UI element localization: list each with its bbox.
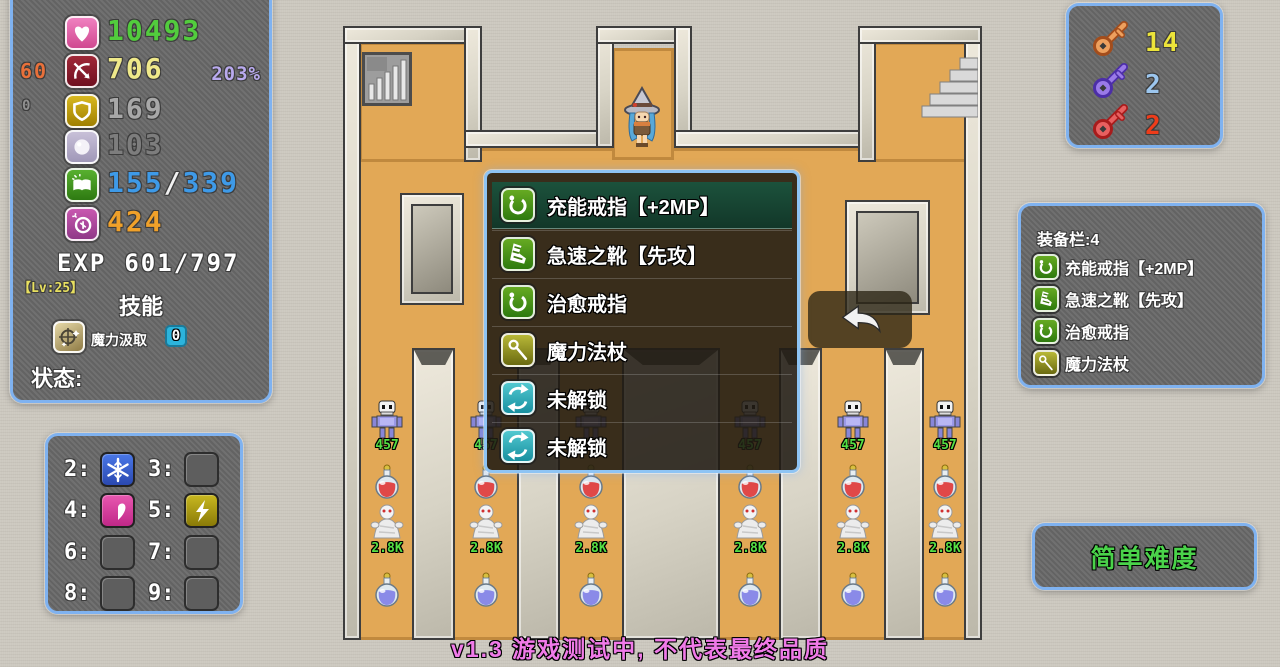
version-text: v1.3 游戏测试中, 不代表最终品质 — [0, 630, 1280, 664]
blue-key-icon — [1091, 60, 1131, 105]
blue-potion[interactable] — [373, 572, 401, 613]
coins-value: 424 — [107, 205, 164, 238]
staff-icon — [501, 333, 535, 367]
enemy-hp-label: 2.8K — [571, 541, 611, 556]
lightning-skill-icon — [189, 498, 215, 524]
popup-item-label: 未解锁 — [547, 384, 607, 413]
refresh-icon — [501, 429, 535, 463]
orb-icon — [65, 130, 99, 164]
skills-header: 技能 — [13, 289, 269, 321]
wall — [858, 26, 982, 44]
enemy-hp-label: 2.8K — [925, 541, 965, 556]
hotkey-slot-9[interactable] — [184, 576, 219, 611]
enemy-hp-label: 2.8K — [833, 541, 873, 556]
corridor-entities: 457 2.8K — [833, 400, 873, 615]
red-potion[interactable] — [373, 464, 401, 505]
popup-item-charge-ring[interactable]: 充能戒指【+2MP】 — [492, 182, 792, 229]
equipment-item: 治愈戒指 — [1033, 318, 1129, 344]
popup-item-locked-2[interactable]: 未解锁 — [492, 422, 792, 469]
attack-value: 706 — [107, 52, 164, 85]
enemy-hp-label: 2.8K — [466, 541, 506, 556]
attack-sword-icon — [65, 54, 99, 88]
blue-potion[interactable] — [839, 572, 867, 613]
keys-panel: 14 2 2 — [1066, 3, 1223, 148]
blue-potion[interactable] — [577, 572, 605, 613]
yellow-key-icon — [1091, 18, 1131, 63]
ring-icon — [501, 188, 535, 222]
equipment-panel-title: 装备栏:4 — [1037, 226, 1099, 250]
corridor-entities: 457 2.8K — [925, 400, 965, 615]
equipment-item-label: 治愈戒指 — [1065, 319, 1129, 343]
hotkey-label-7: 7: — [148, 540, 175, 565]
status-label: 状态: — [31, 361, 82, 393]
enemy-hp-label: 457 — [367, 438, 407, 453]
exp-row: EXP 601/797 — [57, 249, 240, 277]
skill-mana-drain-icon — [53, 321, 85, 353]
hotkey-slot-8[interactable] — [100, 576, 135, 611]
hotkey-slot-7[interactable] — [184, 535, 219, 570]
difficulty-label: 简单难度 — [1090, 539, 1198, 575]
red-potion[interactable] — [839, 464, 867, 505]
equipment-item-label: 急速之靴【先攻】 — [1065, 287, 1193, 311]
undo-button[interactable] — [808, 291, 912, 348]
equipment-item-label: 充能戒指【+2MP】 — [1065, 255, 1203, 279]
defense-extra-value: 0 — [22, 98, 32, 114]
skill-count: 0 — [172, 328, 180, 344]
staff-icon — [1033, 350, 1059, 376]
grate-icon[interactable] — [362, 52, 412, 111]
blue-key-count: 2 — [1145, 70, 1163, 100]
popup-item-label: 未解锁 — [547, 432, 607, 461]
mp-current: 155 — [107, 166, 164, 199]
equipment-item: 充能戒指【+2MP】 — [1033, 254, 1203, 280]
enemy-hp-label: 2.8K — [730, 541, 770, 556]
hotkey-slot-3[interactable] — [184, 452, 219, 487]
hotkey-label-6: 6: — [64, 540, 91, 565]
pillar — [400, 193, 464, 305]
magic-defense-value: 103 — [107, 128, 164, 161]
popup-item-locked-1[interactable]: 未解锁 — [492, 374, 792, 421]
boot-icon — [501, 237, 535, 271]
attack-extra-value: 60 — [20, 59, 48, 83]
boot-icon — [1033, 286, 1059, 312]
popup-item-speed-boots[interactable]: 急速之靴【先攻】 — [492, 230, 792, 277]
enemy-hp-label: 457 — [833, 438, 873, 453]
blue-potion[interactable] — [931, 572, 959, 613]
popup-item-label: 魔力法杖 — [547, 336, 627, 365]
skill-count-badge: 0 — [165, 325, 187, 347]
hotkey-label-2: 2: — [64, 457, 91, 482]
exp-label: EXP — [57, 249, 106, 277]
popup-item-heal-ring[interactable]: 治愈戒指 — [492, 278, 792, 325]
hotkey-label-9: 9: — [148, 581, 175, 606]
blue-potion[interactable] — [472, 572, 500, 613]
attack-percent-value: 203% — [211, 63, 261, 85]
frost-skill-icon — [105, 457, 131, 483]
hotkey-label-5: 5: — [148, 498, 175, 523]
spellbook-icon — [65, 168, 99, 202]
hotkey-label-8: 8: — [64, 581, 91, 606]
hotkey-panel: 2: 3: 4: 5: 6: 7: 8: 9: — [45, 433, 243, 614]
half-heart-skill-icon — [105, 498, 131, 524]
red-potion[interactable] — [931, 464, 959, 505]
hero-character — [617, 86, 667, 157]
ring-icon — [1033, 254, 1059, 280]
ring-icon — [1033, 318, 1059, 344]
mp-max: 339 — [182, 166, 239, 199]
coin-icon — [65, 207, 99, 241]
mp-divider: / — [164, 166, 183, 199]
yellow-key-count: 14 — [1145, 28, 1180, 58]
difficulty-button[interactable]: 简单难度 — [1032, 523, 1257, 590]
defense-shield-icon — [65, 94, 99, 128]
blue-potion[interactable] — [736, 572, 764, 613]
hp-heart-icon — [65, 16, 99, 50]
equipment-item: 急速之靴【先攻】 — [1033, 286, 1193, 312]
corridor-wall — [412, 348, 455, 640]
red-key-count: 2 — [1145, 111, 1163, 141]
popup-item-label: 治愈戒指 — [547, 288, 627, 317]
hotkey-slot-6[interactable] — [100, 535, 135, 570]
corridor-wall — [884, 348, 924, 640]
hotkey-label-4: 4: — [64, 498, 91, 523]
ring-icon — [501, 285, 535, 319]
hotkey-slot-5[interactable] — [184, 493, 219, 528]
hotkey-slot-2[interactable] — [100, 452, 135, 487]
equipment-panel: 装备栏:4 充能戒指【+2MP】 急速之靴【先攻】 治愈戒指 魔力法杖 — [1018, 203, 1265, 388]
popup-item-magic-staff[interactable]: 魔力法杖 — [492, 326, 792, 373]
equipment-item-label: 魔力法杖 — [1065, 351, 1129, 375]
defense-value: 169 — [107, 92, 164, 125]
popup-item-label: 充能戒指【+2MP】 — [547, 191, 720, 220]
equipment-popup-menu: 充能戒指【+2MP】 急速之靴【先攻】 治愈戒指 魔力法杖 未解锁 未解锁 — [484, 170, 800, 473]
wall — [464, 130, 614, 148]
wall — [674, 130, 876, 148]
popup-item-label: 急速之靴【先攻】 — [547, 240, 707, 269]
hotkey-label-3: 3: — [148, 457, 175, 482]
enemy-hp-label: 457 — [925, 438, 965, 453]
mp-value-row: 155/339 — [107, 166, 239, 199]
hp-value: 10493 — [107, 14, 201, 47]
wall — [343, 26, 482, 44]
red-key-icon — [1091, 101, 1131, 146]
stairs-icon[interactable] — [920, 54, 978, 123]
exp-value: 601/797 — [124, 249, 239, 277]
skill-name: 魔力汲取 — [91, 330, 147, 350]
refresh-icon — [501, 381, 535, 415]
undo-arrow-icon — [834, 301, 886, 339]
enemy-hp-label: 2.8K — [367, 541, 407, 556]
hotkey-slot-4[interactable] — [100, 493, 135, 528]
wall — [858, 26, 876, 162]
corridor-entities: 457 2.8K — [367, 400, 407, 615]
wall — [343, 26, 361, 640]
wall — [596, 26, 614, 148]
stats-panel: 10493 60 706 203% 0 169 103 155/339 424 … — [10, 0, 272, 403]
equipment-item: 魔力法杖 — [1033, 350, 1129, 376]
